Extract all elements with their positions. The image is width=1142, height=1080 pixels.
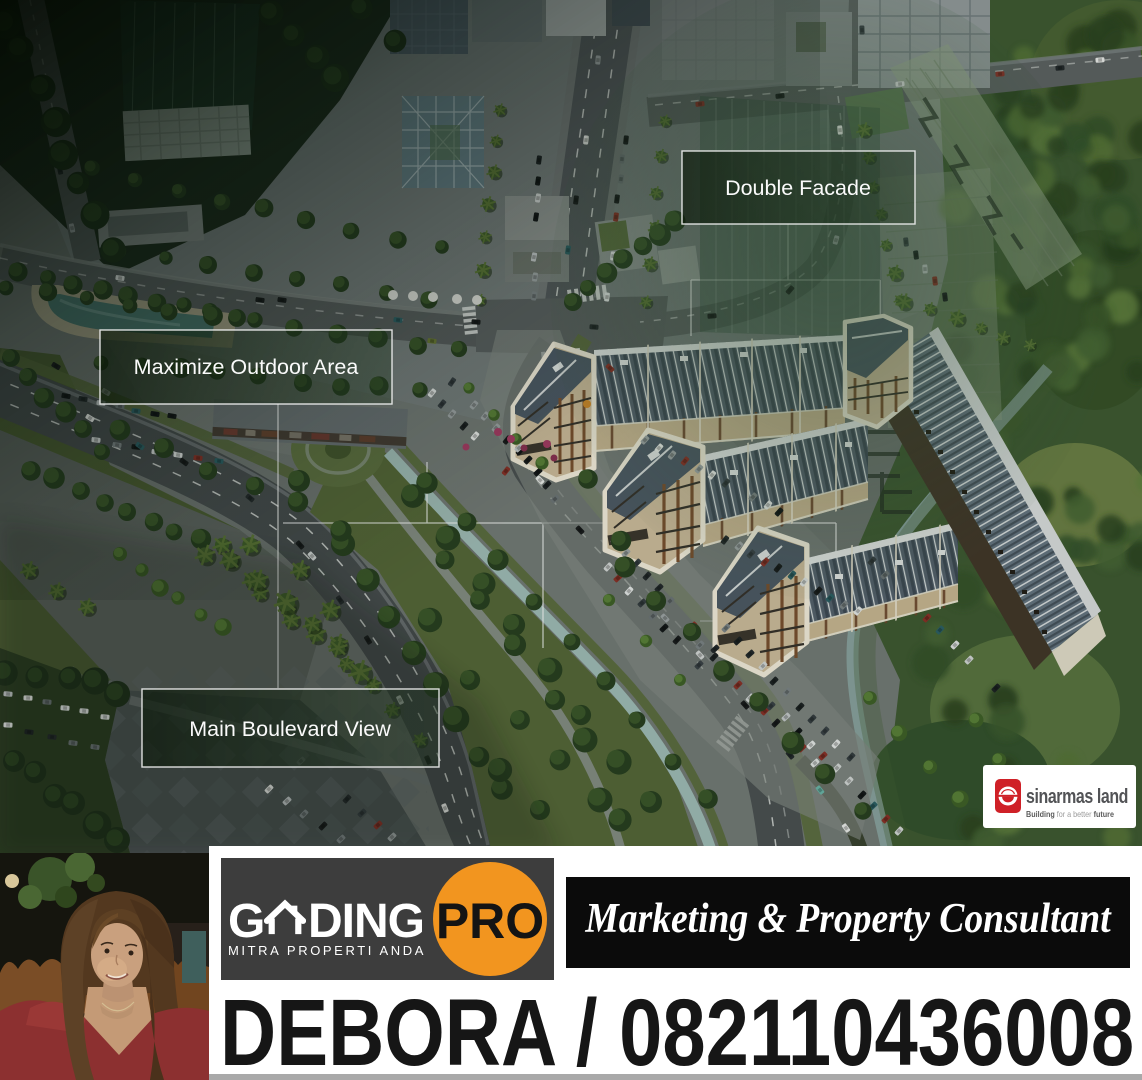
svg-text:Maximize Outdoor Area: Maximize Outdoor Area xyxy=(134,355,359,379)
svg-text:sinarmas land: sinarmas land xyxy=(1026,786,1128,808)
svg-text:Double Facade: Double Facade xyxy=(725,176,871,200)
svg-text:Building for a better future: Building for a better future xyxy=(1026,809,1114,819)
svg-text:Main Boulevard View: Main Boulevard View xyxy=(189,717,391,741)
